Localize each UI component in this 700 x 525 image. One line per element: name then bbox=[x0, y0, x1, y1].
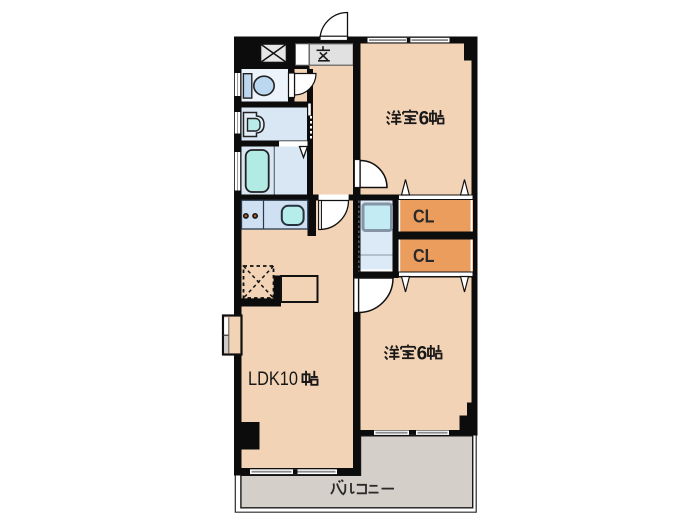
svg-text:6: 6 bbox=[417, 344, 428, 365]
svg-text:LDK10: LDK10 bbox=[248, 368, 298, 390]
svg-text:CL: CL bbox=[413, 207, 435, 227]
svg-text:CL: CL bbox=[413, 246, 435, 266]
svg-text:6: 6 bbox=[419, 109, 430, 130]
